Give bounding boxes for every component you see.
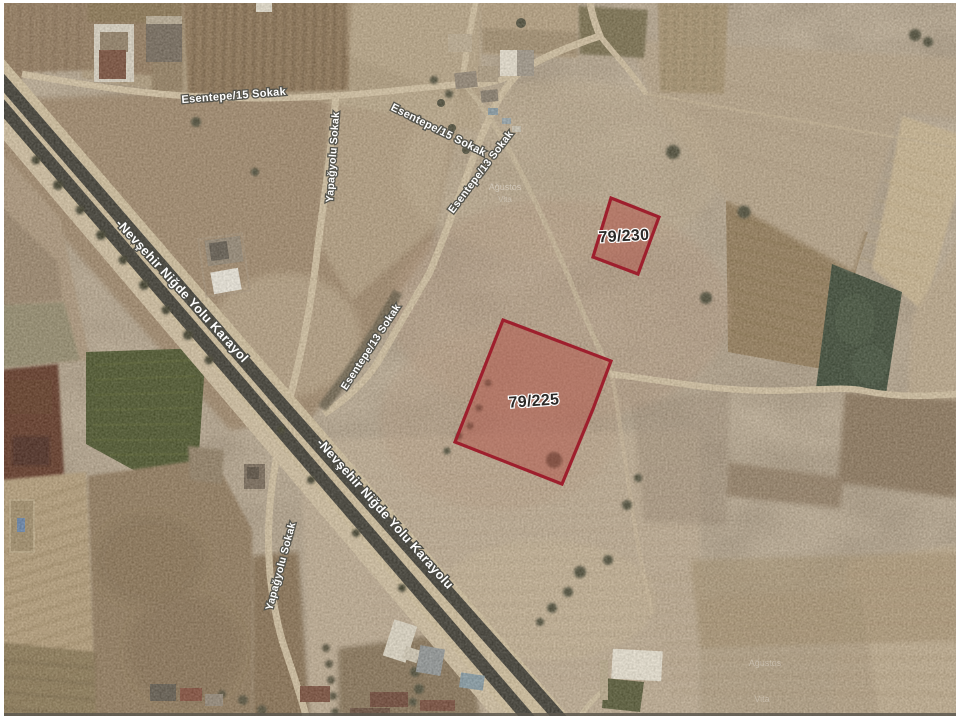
svg-text:Ağustos: Ağustos [749,658,782,668]
svg-text:Vita: Vita [498,195,512,204]
svg-text:79/225: 79/225 [508,391,560,411]
svg-text:Vita: Vita [754,694,769,704]
svg-text:79/230: 79/230 [598,227,650,247]
svg-text:Ağustos: Ağustos [489,182,522,192]
